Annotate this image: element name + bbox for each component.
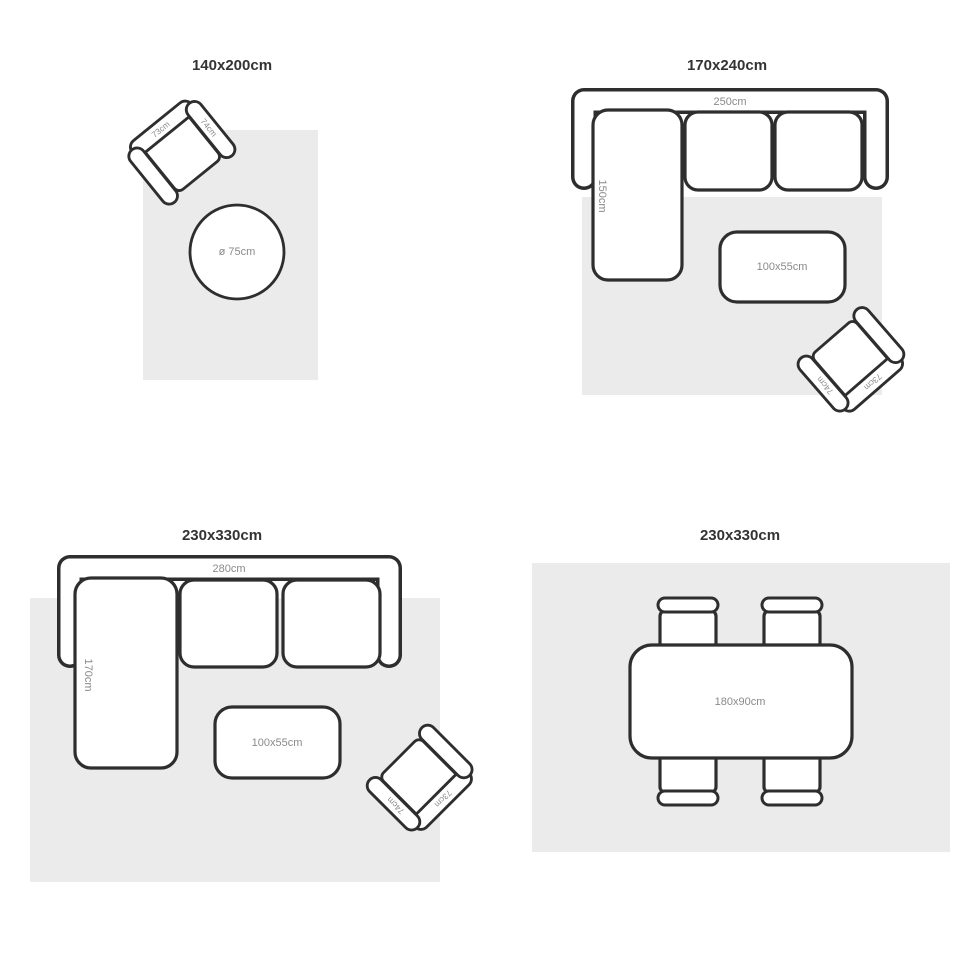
coffee-table-label: 100x55cm bbox=[757, 261, 808, 273]
sofa-chaise-label: 170cm bbox=[82, 658, 94, 691]
dining-table-label: 180x90cm bbox=[715, 696, 766, 708]
size-title: 140x200cm bbox=[192, 57, 272, 74]
size-title: 230x330cm bbox=[700, 527, 780, 544]
rug-size-guide: 140x200cm 73cm 74cm ø 75cm 170x240cm bbox=[0, 0, 970, 970]
diagram-230x330-dining: 230x330cm bbox=[485, 485, 970, 970]
quadrant-230x330-dining: 230x330cm bbox=[485, 485, 970, 970]
diagram-140x200: 140x200cm 73cm 74cm ø 75cm bbox=[0, 0, 485, 485]
round-table-label: ø 75cm bbox=[219, 246, 256, 258]
size-title: 170x240cm bbox=[687, 57, 767, 74]
quadrant-170x240: 170x240cm 250cm 150cm 100x55cm bbox=[485, 0, 970, 485]
size-title: 230x330cm bbox=[182, 527, 262, 544]
sofa-width-label: 280cm bbox=[212, 563, 245, 575]
diagram-230x330-living: 230x330cm 280cm 170cm 100x55cm bbox=[0, 485, 485, 970]
sofa-cushion bbox=[180, 580, 277, 667]
sofa-cushion bbox=[283, 580, 380, 667]
diagram-170x240: 170x240cm 250cm 150cm 100x55cm bbox=[485, 0, 970, 485]
coffee-table-label: 100x55cm bbox=[252, 737, 303, 749]
sofa-width-label: 250cm bbox=[713, 96, 746, 108]
quadrant-230x330-living: 230x330cm 280cm 170cm 100x55cm bbox=[0, 485, 485, 970]
sofa-cushion bbox=[775, 112, 862, 190]
sofa-chaise-label: 150cm bbox=[596, 179, 608, 212]
sofa-cushion bbox=[685, 112, 772, 190]
quadrant-140x200: 140x200cm 73cm 74cm ø 75cm bbox=[0, 0, 485, 485]
